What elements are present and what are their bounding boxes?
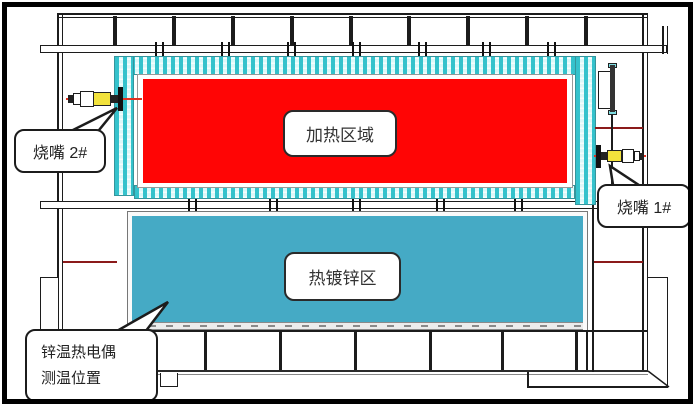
roof-post xyxy=(231,16,235,45)
roof-post xyxy=(525,16,529,45)
zinc-pot-bottom-strip xyxy=(132,322,583,330)
roof-post xyxy=(349,16,353,45)
furnace-diagram: 加热区域 热镀锌区 xyxy=(0,0,695,406)
datum-line-left xyxy=(63,261,117,263)
rail-tick xyxy=(155,42,164,57)
rail-tick xyxy=(188,198,197,211)
roof-post xyxy=(290,16,294,45)
burner1-valve xyxy=(607,150,622,162)
rail-tick xyxy=(418,42,427,57)
burner1-tip xyxy=(640,153,644,160)
rail-tick xyxy=(352,42,361,57)
rail-tick xyxy=(287,42,296,57)
burner2-connector xyxy=(111,95,118,103)
deck-divider xyxy=(354,332,357,370)
right-inner-vertical xyxy=(592,205,594,372)
top-rail-right-cap xyxy=(662,26,668,54)
deck-divider xyxy=(575,332,578,370)
rail-tick xyxy=(547,42,556,57)
rail-tick xyxy=(436,198,445,211)
rail-tick xyxy=(221,42,230,57)
burner1-callout: 烧嘴 1# xyxy=(597,184,691,228)
galvanizing-zone-label-text: 热镀锌区 xyxy=(309,264,377,289)
datum-line-right-upper xyxy=(595,127,643,129)
furnace-right-wall xyxy=(575,56,596,205)
platform-corner-diagonal xyxy=(645,369,671,389)
burner2-callout: 烧嘴 2# xyxy=(14,129,106,173)
sight-box-bar xyxy=(610,65,615,112)
datum-line-right xyxy=(592,261,643,263)
middle-rail xyxy=(40,201,645,209)
rail-tick xyxy=(514,198,523,211)
deck-divider xyxy=(279,332,282,370)
deck-divider xyxy=(429,332,432,370)
burner1-body xyxy=(622,149,634,163)
furnace-top-wall xyxy=(114,56,596,75)
platform-step-line xyxy=(527,372,529,387)
deck-divider xyxy=(501,332,504,370)
thermocouple-callout-line1: 锌温热电偶 xyxy=(41,340,116,366)
rail-tick xyxy=(482,42,491,57)
galvanizing-zone-label: 热镀锌区 xyxy=(284,252,401,301)
base-notch xyxy=(160,373,178,387)
burner2-callout-text: 烧嘴 2# xyxy=(33,139,87,163)
heating-zone-label: 加热区域 xyxy=(283,110,397,157)
rail-tick xyxy=(269,198,278,211)
burner1-callout-text: 烧嘴 1# xyxy=(617,194,671,218)
roof-post xyxy=(466,16,470,45)
heating-zone-label-text: 加热区域 xyxy=(306,121,374,146)
roof-post xyxy=(407,16,411,45)
roof-post xyxy=(172,16,176,45)
left-step xyxy=(40,277,58,332)
rail-tick xyxy=(352,198,361,211)
thermocouple-callout: 锌温热电偶 测温位置 xyxy=(25,329,158,402)
roof-post xyxy=(113,16,117,45)
thermocouple-callout-line2: 测温位置 xyxy=(41,366,101,392)
roof-post xyxy=(584,16,588,45)
deck-divider xyxy=(204,332,207,370)
